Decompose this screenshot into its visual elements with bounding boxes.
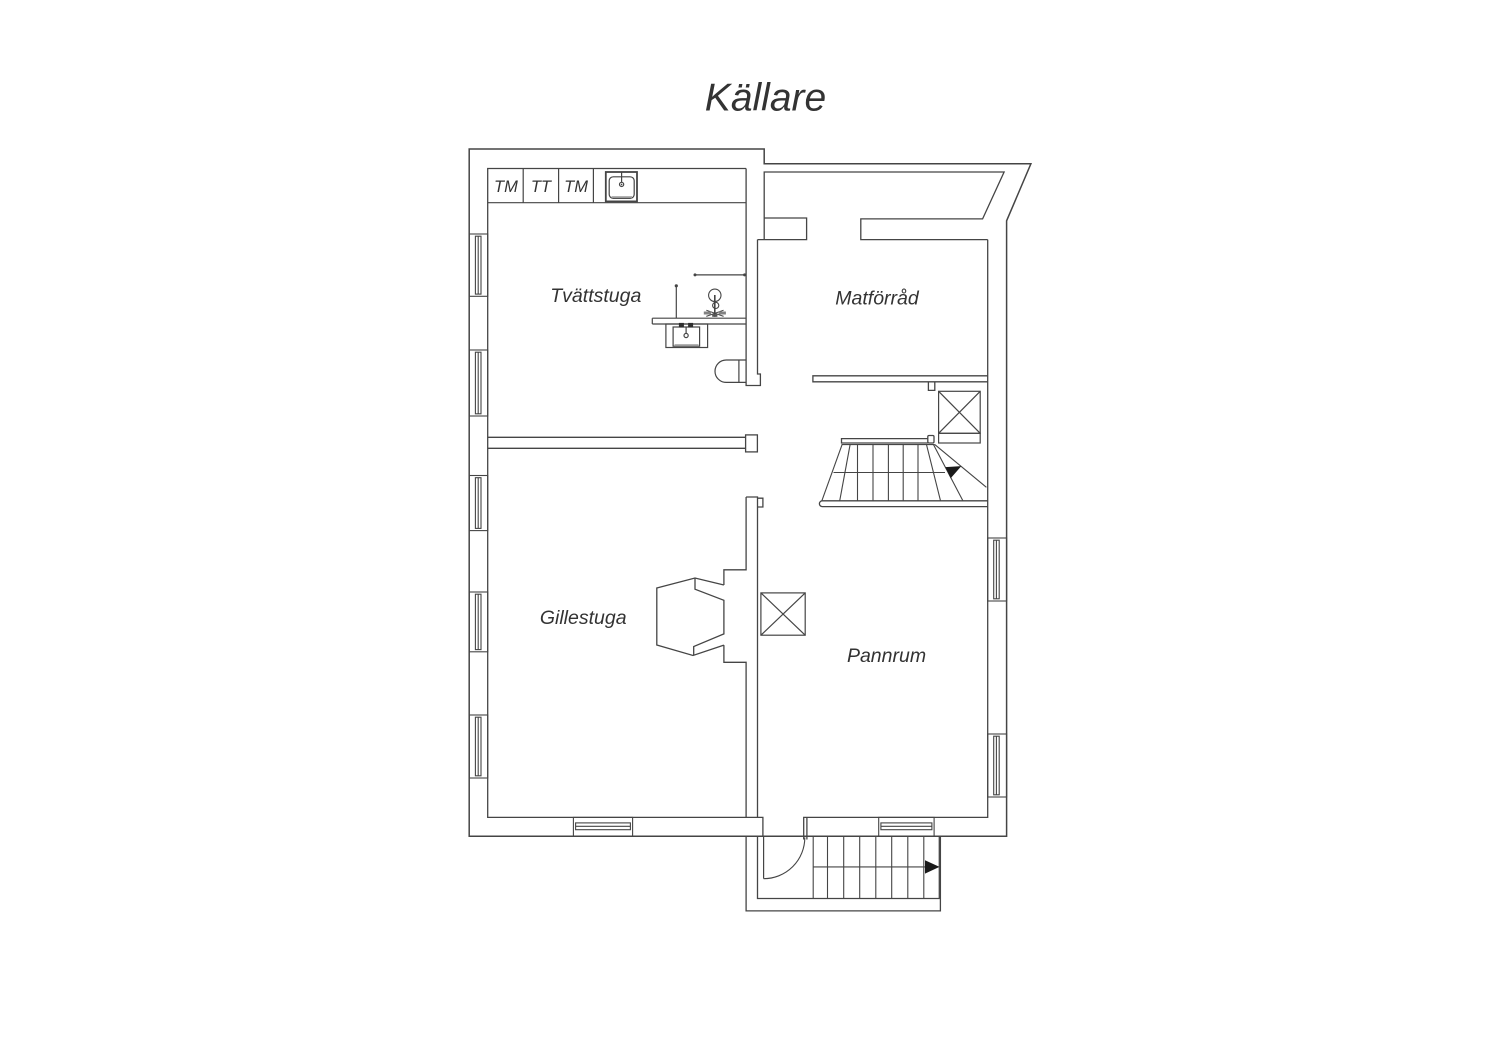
svg-text:Pannrum: Pannrum [847, 645, 926, 667]
svg-text:TM: TM [494, 178, 518, 196]
svg-text:TT: TT [531, 178, 553, 196]
svg-text:Källare: Källare [705, 77, 826, 120]
svg-text:Matförråd: Matförråd [835, 288, 920, 310]
svg-text:Gillestuga: Gillestuga [540, 607, 627, 629]
svg-text:TM: TM [564, 178, 588, 196]
svg-text:Tvättstuga: Tvättstuga [550, 285, 641, 307]
